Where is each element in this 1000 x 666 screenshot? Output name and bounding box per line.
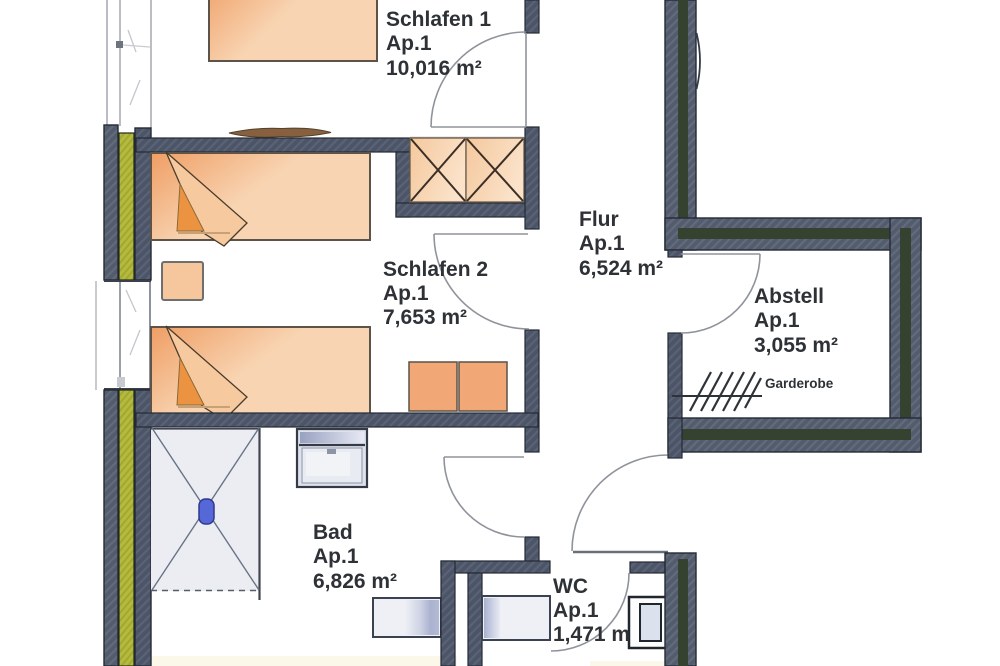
svg-text:Schlafen 1: Schlafen 1 bbox=[386, 8, 491, 31]
svg-text:1,471 m: 1,471 m bbox=[553, 623, 630, 646]
svg-text:Garderobe: Garderobe bbox=[765, 376, 834, 391]
svg-text:Ap.1: Ap.1 bbox=[579, 232, 625, 255]
svg-text:Bad: Bad bbox=[313, 521, 353, 544]
svg-text:7,653 m²: 7,653 m² bbox=[383, 306, 467, 329]
svg-text:3,055 m²: 3,055 m² bbox=[754, 334, 838, 357]
svg-text:Abstell: Abstell bbox=[754, 285, 824, 308]
svg-text:Ap.1: Ap.1 bbox=[754, 309, 800, 332]
svg-text:6,524 m²: 6,524 m² bbox=[579, 257, 663, 280]
svg-text:10,016 m²: 10,016 m² bbox=[386, 57, 482, 80]
svg-text:Ap.1: Ap.1 bbox=[553, 599, 599, 622]
svg-text:Ap.1: Ap.1 bbox=[386, 32, 432, 55]
svg-text:Schlafen 2: Schlafen 2 bbox=[383, 258, 488, 281]
svg-text:6,826 m²: 6,826 m² bbox=[313, 570, 397, 593]
svg-text:Ap.1: Ap.1 bbox=[313, 545, 359, 568]
svg-text:Ap.1: Ap.1 bbox=[383, 282, 429, 305]
svg-text:Flur: Flur bbox=[579, 208, 619, 231]
svg-text:WC: WC bbox=[553, 575, 588, 598]
